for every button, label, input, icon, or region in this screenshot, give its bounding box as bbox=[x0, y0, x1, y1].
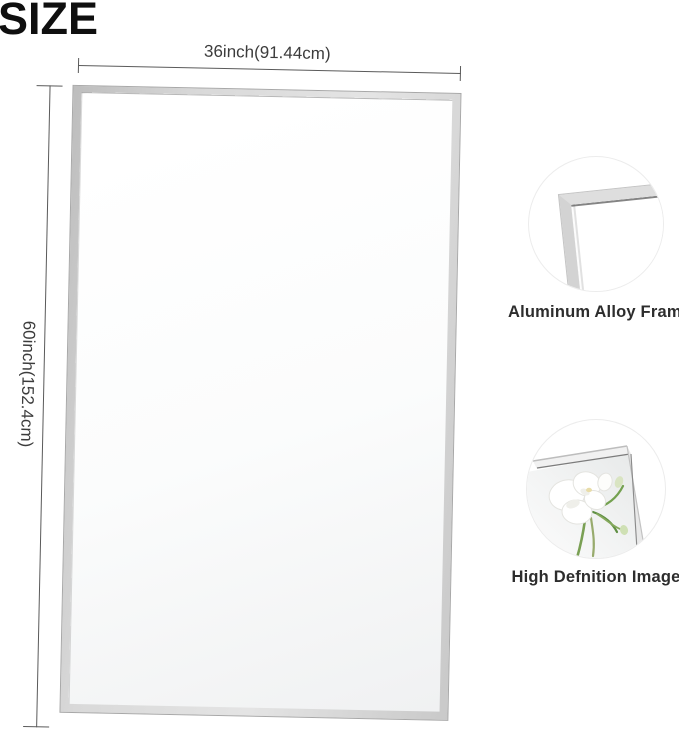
width-dimension-label: 36inch(91.44cm) bbox=[157, 41, 377, 66]
hd-detail-caption: High Defnition Image bbox=[508, 568, 679, 587]
dimension-tick bbox=[78, 58, 79, 73]
dimension-tick bbox=[37, 85, 63, 87]
dimension-tick bbox=[23, 726, 49, 728]
mirror-dimension-diagram: 36inch(91.44cm) 60inch(152.4cm) bbox=[11, 44, 471, 732]
page-title: SIZE bbox=[0, 0, 98, 41]
width-dimension-line bbox=[78, 65, 461, 74]
dimension-tick bbox=[460, 66, 461, 81]
product-size-image: SIZE 36inch(91.44cm) 60inch(152.4cm) Alu… bbox=[0, 0, 679, 732]
mirror-frame bbox=[59, 85, 461, 721]
frame-corner-image bbox=[559, 174, 664, 292]
flowers-image bbox=[527, 420, 666, 559]
frame-detail-caption: Aluminum Alloy Frame bbox=[508, 303, 679, 322]
frame-detail-callout: Aluminum Alloy Frame bbox=[508, 156, 679, 322]
frame-detail-circle bbox=[528, 156, 664, 292]
height-dimension-label: 60inch(152.4cm) bbox=[14, 299, 40, 469]
hd-detail-circle bbox=[526, 419, 666, 559]
hd-detail-callout: High Defnition Image bbox=[508, 419, 679, 587]
height-dimension-line bbox=[36, 85, 50, 727]
mirror-glass bbox=[69, 92, 453, 712]
